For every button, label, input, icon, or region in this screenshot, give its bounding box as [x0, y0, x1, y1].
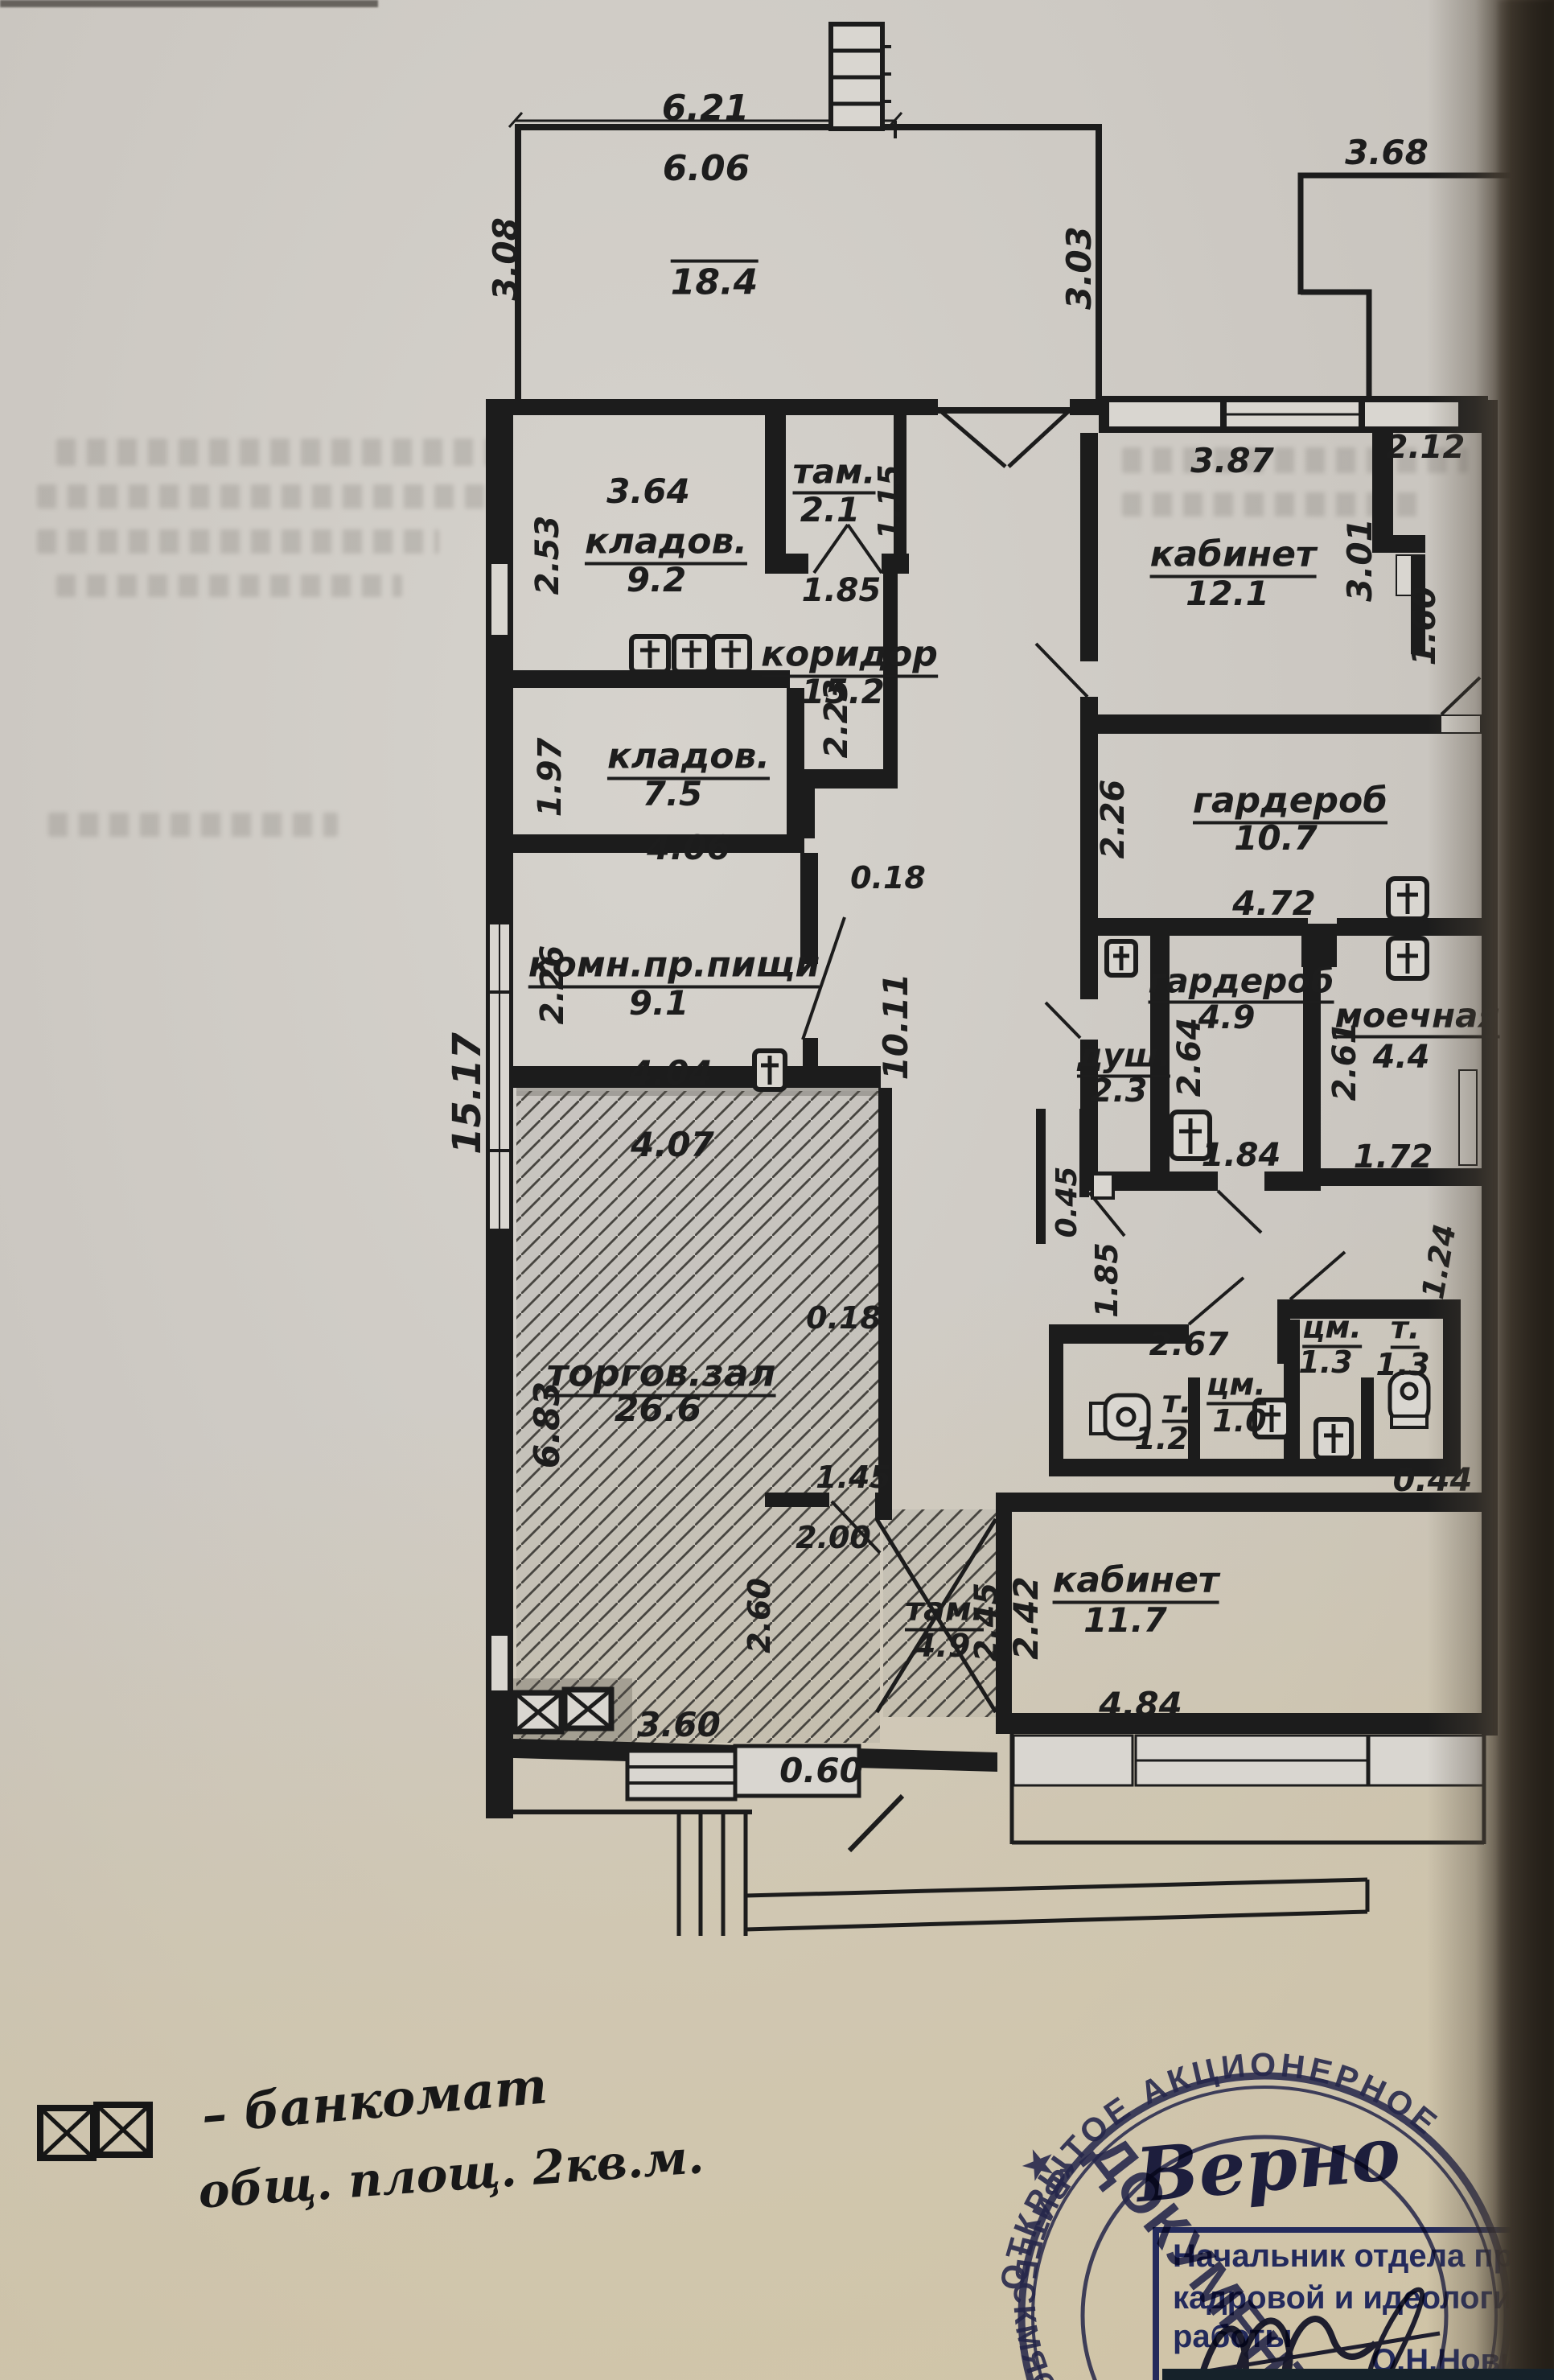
- round-stamp: ОТКРЫТОЕ АКЦИОНЕРНОЕ «ВИТЕБСКМЯСО ★ ДОКУ…: [0, 0, 1554, 2380]
- scan-bottom-line: [1162, 2369, 1554, 2380]
- stamp-arc-left-text: «ВИТЕБСКМЯСО: [0, 0, 1087, 2380]
- scan-top-edge: [0, 0, 378, 7]
- scanned-floor-plan-page: 6.216.0618.43.083.033.683.872.12там.2.11…: [0, 0, 1554, 2380]
